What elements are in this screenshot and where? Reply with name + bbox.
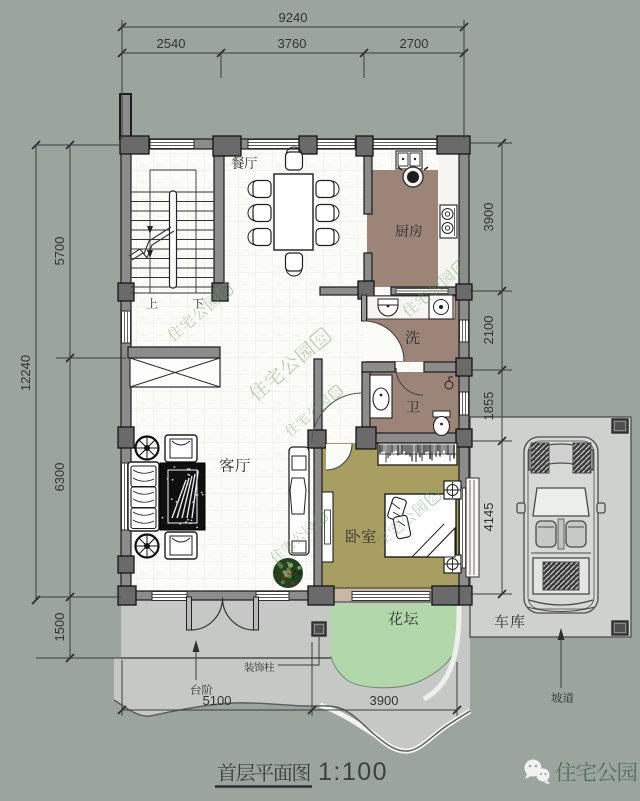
svg-text:1500: 1500 (52, 613, 67, 642)
svg-text:2540: 2540 (157, 36, 186, 51)
svg-text:3900: 3900 (481, 203, 496, 232)
svg-text:1:100: 1:100 (318, 758, 388, 786)
svg-text:9240: 9240 (279, 10, 308, 25)
svg-text:2100: 2100 (481, 316, 496, 345)
svg-text:1855: 1855 (481, 392, 496, 421)
svg-text:5100: 5100 (203, 693, 232, 708)
svg-text:3900: 3900 (370, 693, 399, 708)
svg-text:5700: 5700 (52, 237, 67, 266)
svg-text:12240: 12240 (18, 355, 33, 391)
svg-text:3760: 3760 (278, 36, 307, 51)
svg-text:6300: 6300 (52, 463, 67, 492)
svg-text:4145: 4145 (481, 503, 496, 532)
svg-text:2700: 2700 (400, 36, 429, 51)
